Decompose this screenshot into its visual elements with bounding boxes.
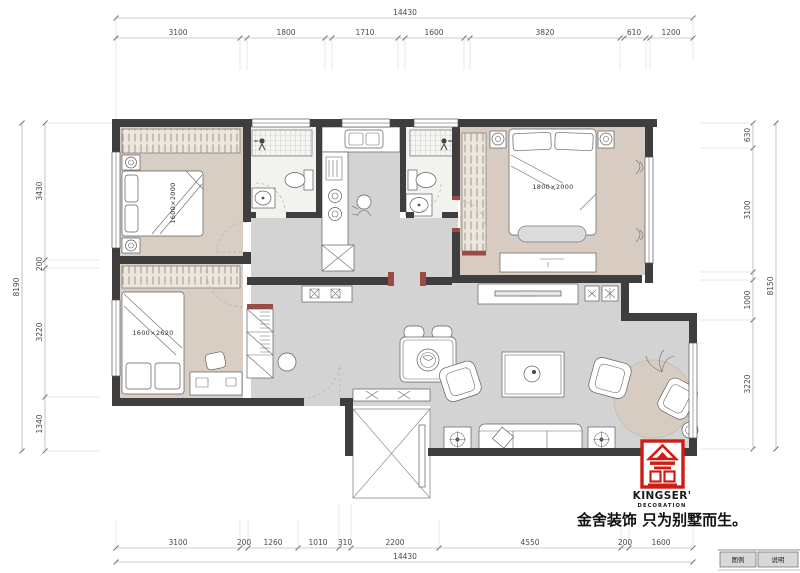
void-shaft bbox=[353, 409, 430, 498]
note-label: 说明 bbox=[772, 555, 786, 564]
bench bbox=[518, 226, 586, 242]
bed-size-label: 1600×2620 bbox=[132, 329, 173, 337]
dimension-top: 14430 3100 1800 1710 1600 3820 610 1200 bbox=[114, 8, 696, 119]
chair bbox=[205, 351, 227, 371]
brand-name: KINGSER' bbox=[633, 490, 692, 502]
brand-slogan: 金舍装饰 只为别墅而生。 bbox=[576, 511, 747, 529]
dim-label: 3220 bbox=[35, 322, 44, 341]
dim-label: 3820 bbox=[535, 28, 554, 37]
toilet-bowl bbox=[416, 173, 436, 188]
stove-burner bbox=[329, 208, 342, 221]
dim-label: 4550 bbox=[520, 538, 539, 547]
dim-left-overall: 8190 bbox=[12, 277, 21, 296]
pillow bbox=[125, 205, 138, 232]
brand-subtitle: DECORATION bbox=[638, 503, 687, 509]
dim-label: 200 bbox=[618, 538, 633, 547]
bed-size-label: 1600×2000 bbox=[169, 182, 177, 223]
dim-label: 200 bbox=[237, 538, 252, 547]
toilet-bowl bbox=[285, 173, 305, 188]
dim-label: 3100 bbox=[168, 28, 187, 37]
dimension-right: 630 3100 1000 3220 8150 bbox=[700, 121, 779, 452]
dim-top-overall: 14430 bbox=[393, 8, 417, 17]
dim-label: 630 bbox=[743, 128, 752, 143]
floor-plan-svg: 1600×2000 1600×2620 bbox=[0, 0, 800, 573]
sideboard bbox=[302, 286, 352, 302]
desk bbox=[190, 372, 242, 395]
wardrobe bbox=[122, 266, 240, 288]
pillow bbox=[513, 132, 552, 150]
dim-label: 310 bbox=[338, 538, 353, 547]
dim-label: 1600 bbox=[651, 538, 670, 547]
tv bbox=[495, 291, 561, 296]
dim-bottom-overall: 14430 bbox=[393, 552, 417, 561]
dim-label: 1000 bbox=[743, 290, 752, 309]
pillow bbox=[126, 363, 151, 389]
person-icon bbox=[357, 195, 371, 209]
table-decor bbox=[524, 366, 540, 382]
pillow bbox=[125, 175, 138, 202]
dim-label: 1010 bbox=[308, 538, 327, 547]
dim-label: 1710 bbox=[355, 28, 374, 37]
shower-area bbox=[410, 130, 456, 156]
shower-icon bbox=[441, 138, 446, 143]
dim-label: 3100 bbox=[168, 538, 187, 547]
shoe-cabinet bbox=[353, 389, 430, 401]
kitchen-sink bbox=[345, 130, 383, 148]
dim-label: 1800 bbox=[276, 28, 295, 37]
floor-plan-page: 1600×2000 1600×2620 bbox=[0, 0, 800, 573]
dim-label: 3220 bbox=[743, 374, 752, 393]
dim-label: 3430 bbox=[35, 181, 44, 200]
pillow bbox=[155, 363, 180, 389]
shower-icon bbox=[259, 138, 264, 143]
dim-label: 2200 bbox=[385, 538, 404, 547]
dim-label: 3100 bbox=[743, 200, 752, 219]
dim-label: 200 bbox=[35, 257, 44, 272]
dim-right-overall: 8150 bbox=[766, 276, 775, 295]
dim-label: 1340 bbox=[35, 414, 44, 433]
stool bbox=[278, 353, 296, 371]
dim-label: 1600 bbox=[424, 28, 443, 37]
legend-label: 图例 bbox=[732, 555, 745, 564]
dimension-left: 8190 3430 200 3220 1340 bbox=[12, 121, 112, 454]
bed-size-label: 1800×2000 bbox=[532, 183, 573, 191]
dim-label: 610 bbox=[627, 28, 642, 37]
stove-burner bbox=[329, 190, 342, 203]
pillow bbox=[555, 132, 594, 150]
wardrobe bbox=[122, 129, 240, 153]
dim-label: 1200 bbox=[661, 28, 680, 37]
wardrobe bbox=[462, 133, 486, 251]
legend-table: 图例 说明 bbox=[718, 550, 800, 570]
dim-label: 1260 bbox=[263, 538, 282, 547]
